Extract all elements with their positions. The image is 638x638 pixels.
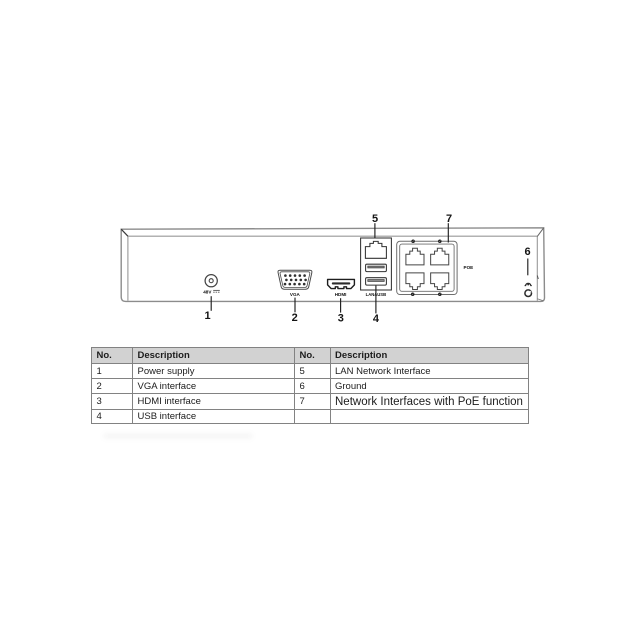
- svg-text:6: 6: [524, 246, 530, 258]
- svg-text:3: 3: [338, 312, 344, 324]
- svg-text:4: 4: [373, 313, 380, 325]
- svg-text:HDMI: HDMI: [335, 292, 347, 297]
- svg-text:48V: 48V: [203, 289, 212, 294]
- svg-text:7: 7: [446, 213, 452, 225]
- svg-text:VGA: VGA: [290, 292, 301, 297]
- svg-text:1: 1: [204, 310, 210, 322]
- svg-text:5: 5: [372, 213, 378, 225]
- svg-text:2: 2: [292, 312, 298, 324]
- svg-text:POE: POE: [464, 265, 474, 270]
